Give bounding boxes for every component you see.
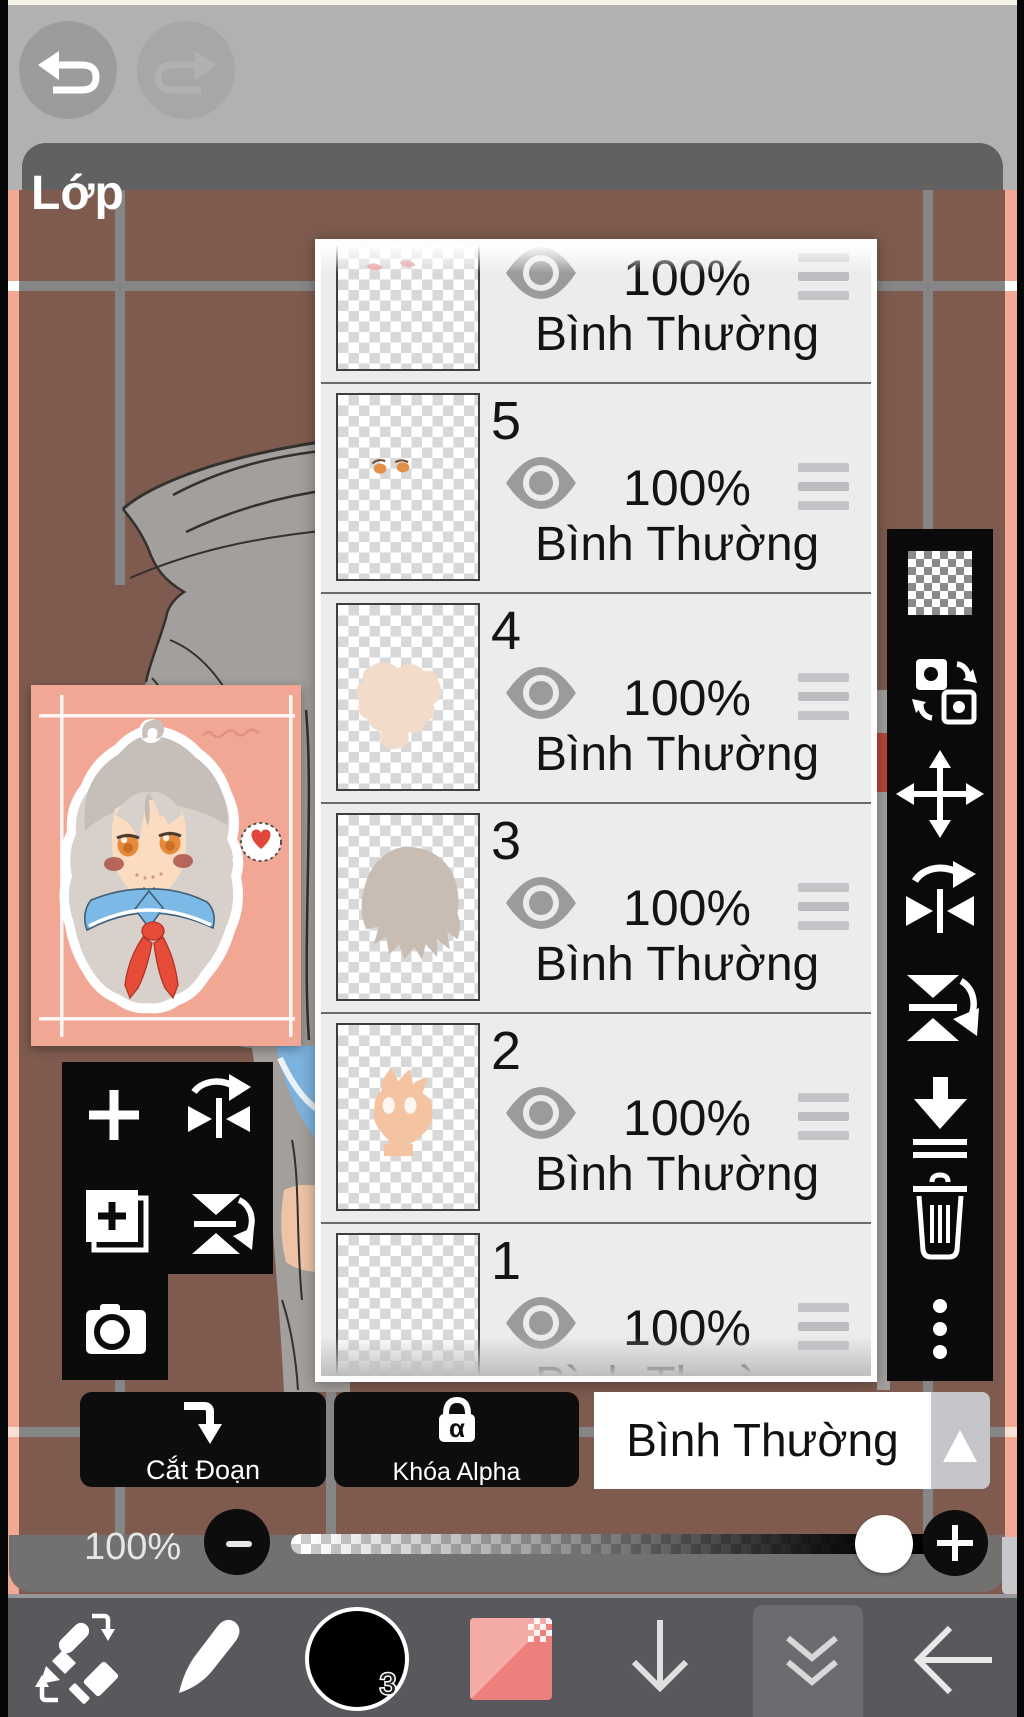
svg-text:α: α (449, 1413, 465, 1443)
svg-text:3: 3 (380, 1668, 397, 1701)
